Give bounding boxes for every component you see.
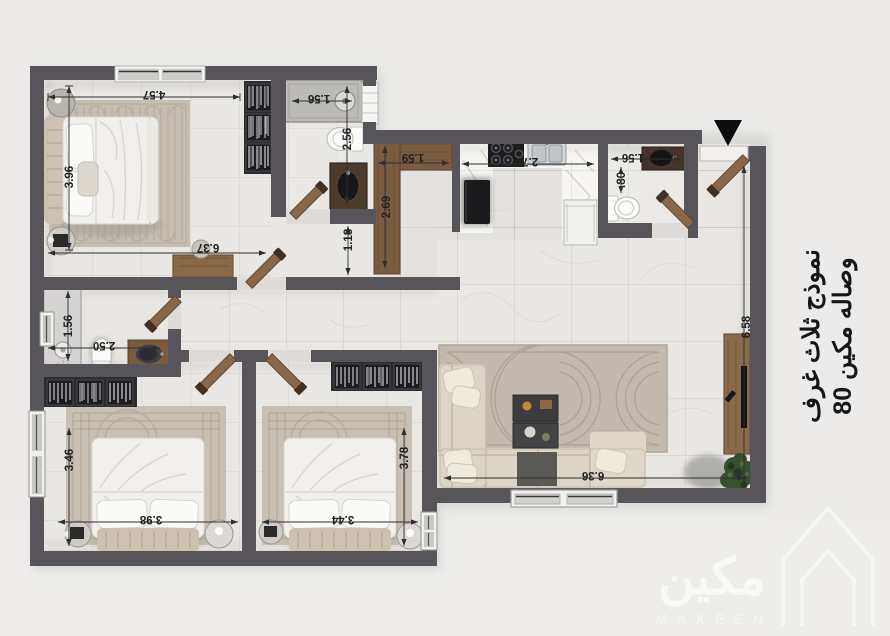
- svg-text:2.72: 2.72: [516, 155, 538, 167]
- svg-text:3.44: 3.44: [331, 513, 354, 525]
- svg-text:3.96: 3.96: [64, 166, 76, 188]
- svg-text:3.46: 3.46: [64, 449, 76, 471]
- svg-text:2.69: 2.69: [381, 196, 393, 218]
- svg-text:3.98: 3.98: [139, 513, 162, 525]
- svg-text:وصاله مكين 80: وصاله مكين 80: [829, 257, 858, 414]
- svg-text:4.57: 4.57: [143, 88, 165, 100]
- svg-text:6.58: 6.58: [741, 315, 753, 338]
- svg-text:نموذج ثلاث غرف: نموذج ثلاث غرف: [797, 249, 826, 423]
- svg-text:1.59: 1.59: [402, 151, 424, 163]
- svg-text:2.56: 2.56: [342, 128, 354, 150]
- svg-text:1.56: 1.56: [308, 92, 330, 104]
- svg-text:2.50: 2.50: [93, 339, 115, 351]
- svg-text:.80: .80: [616, 172, 628, 188]
- svg-text:1.18: 1.18: [343, 228, 355, 251]
- svg-text:6.36: 6.36: [582, 469, 604, 481]
- svg-text:3.78: 3.78: [399, 446, 411, 469]
- svg-text:MAKEEN: MAKEEN: [656, 612, 773, 627]
- svg-text:1.56: 1.56: [622, 151, 644, 163]
- svg-text:1.56: 1.56: [63, 315, 75, 337]
- svg-text:6.37: 6.37: [197, 241, 219, 253]
- svg-text:مكين: مكين: [658, 549, 766, 607]
